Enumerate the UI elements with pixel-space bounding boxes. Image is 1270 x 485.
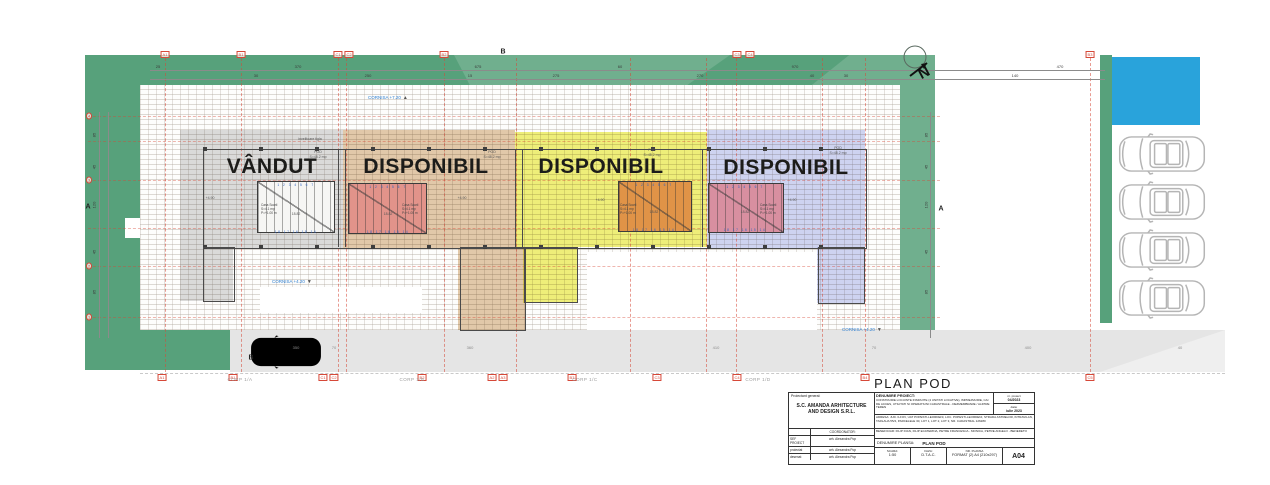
unit-status-label: DISPONIBIL [538, 155, 663, 179]
project-number-cell: nr. proiect 04/2023 [994, 393, 1034, 404]
svg-text:N: N [915, 63, 933, 83]
beneficiary-cell: BENEFICIAR: FILIP IOAN, FILIP ECATERINA,… [875, 429, 1034, 439]
unit-status-label: VÂNDUT [227, 155, 318, 179]
format-value: FORMAT (2) A4 (210x297) [947, 453, 1002, 457]
sheet-title: PLAN POD [874, 376, 952, 391]
staff-row: proiectat arh. Alexandra Pop [789, 447, 874, 454]
title-block-left: Proiectant general: S.C. AMANDA ARHITECT… [789, 393, 875, 464]
north-arrow-icon: N [896, 42, 942, 88]
staff-table: COORDONATOR: SEF PROIECT arh. Alexandra … [789, 429, 874, 464]
coordinator-row: COORDONATOR: [789, 429, 874, 436]
role-cell [789, 429, 811, 435]
phase-cell: FAZA: D.T.A.C. [911, 448, 947, 464]
title-block: Proiectant general: S.C. AMANDA ARHITECT… [788, 392, 1035, 465]
coordinator-label: COORDONATOR: [811, 429, 874, 435]
unit-status-labels: VÂNDUTDISPONIBILDISPONIBILDISPONIBIL [0, 0, 1270, 485]
staff-rows: proiectat arh. Alexandra Pop desenat arh… [789, 447, 874, 460]
project-number-value: 04/2023 [994, 398, 1034, 402]
sheet-code: A04 [1003, 448, 1034, 464]
designer-label: Proiectant general: [791, 394, 872, 398]
project-row: DENUMIRE PROIECT: CONSTRUIRE LOCUINTE IN… [875, 393, 1034, 415]
scale-cell: SCARA: 1:50 [875, 448, 911, 464]
sheet-name-row: DENUMIRE PLANSA: PLAN POD [875, 439, 1034, 448]
sheet-name-value: PLAN POD [922, 441, 945, 446]
firm-name: S.C. AMANDA ARHITECTURE AND DESIGN S.R.L… [791, 403, 872, 415]
date-value: iulie 2023 [994, 409, 1034, 413]
staff-role: proiectat [789, 447, 811, 453]
sef-label: SEF PROIECT [789, 436, 811, 446]
date-cell: data: iulie 2023 [994, 404, 1034, 414]
staff-row: desenat arh. Alexandra Pop [789, 454, 874, 460]
staff-name: arh. Alexandra Pop [811, 454, 874, 460]
unit-status-label: DISPONIBIL [723, 156, 848, 180]
scale-phase-row: SCARA: 1:50 FAZA: D.T.A.C. NR. PLANSA FO… [875, 448, 1034, 464]
sheet-name-label: DENUMIRE PLANSA: [877, 441, 914, 445]
project-meta: nr. proiect 04/2023 data: iulie 2023 [994, 393, 1034, 414]
project-cell: DENUMIRE PROIECT: CONSTRUIRE LOCUINTE IN… [875, 393, 994, 414]
project-description: CONSTRUIRE LOCUINTE INSIRUITE (4 UNITATI… [876, 399, 992, 410]
phase-value: D.T.A.C. [911, 453, 946, 457]
title-block-right: DENUMIRE PROIECT: CONSTRUIRE LOCUINTE IN… [875, 393, 1034, 464]
site-plan-canvas: 2537067560970470 30250152752704030140 85… [0, 0, 1270, 485]
sef-row: SEF PROIECT arh. Alexandra Pop [789, 436, 874, 447]
sheet-number-cell: NR. PLANSA FORMAT (2) A4 (210x297) [947, 448, 1003, 464]
staff-name: arh. Alexandra Pop [811, 447, 874, 453]
sef-name: arh. Alexandra Pop [811, 436, 874, 446]
unit-status-label: DISPONIBIL [363, 155, 488, 179]
scale-value: 1:50 [875, 453, 910, 457]
designer-cell: Proiectant general: S.C. AMANDA ARHITECT… [789, 393, 874, 429]
staff-role: desenat [789, 454, 811, 460]
address-cell: ADRESA: JUD. ILFOV, UAT POPESTI-LEORDENI… [875, 415, 1034, 429]
